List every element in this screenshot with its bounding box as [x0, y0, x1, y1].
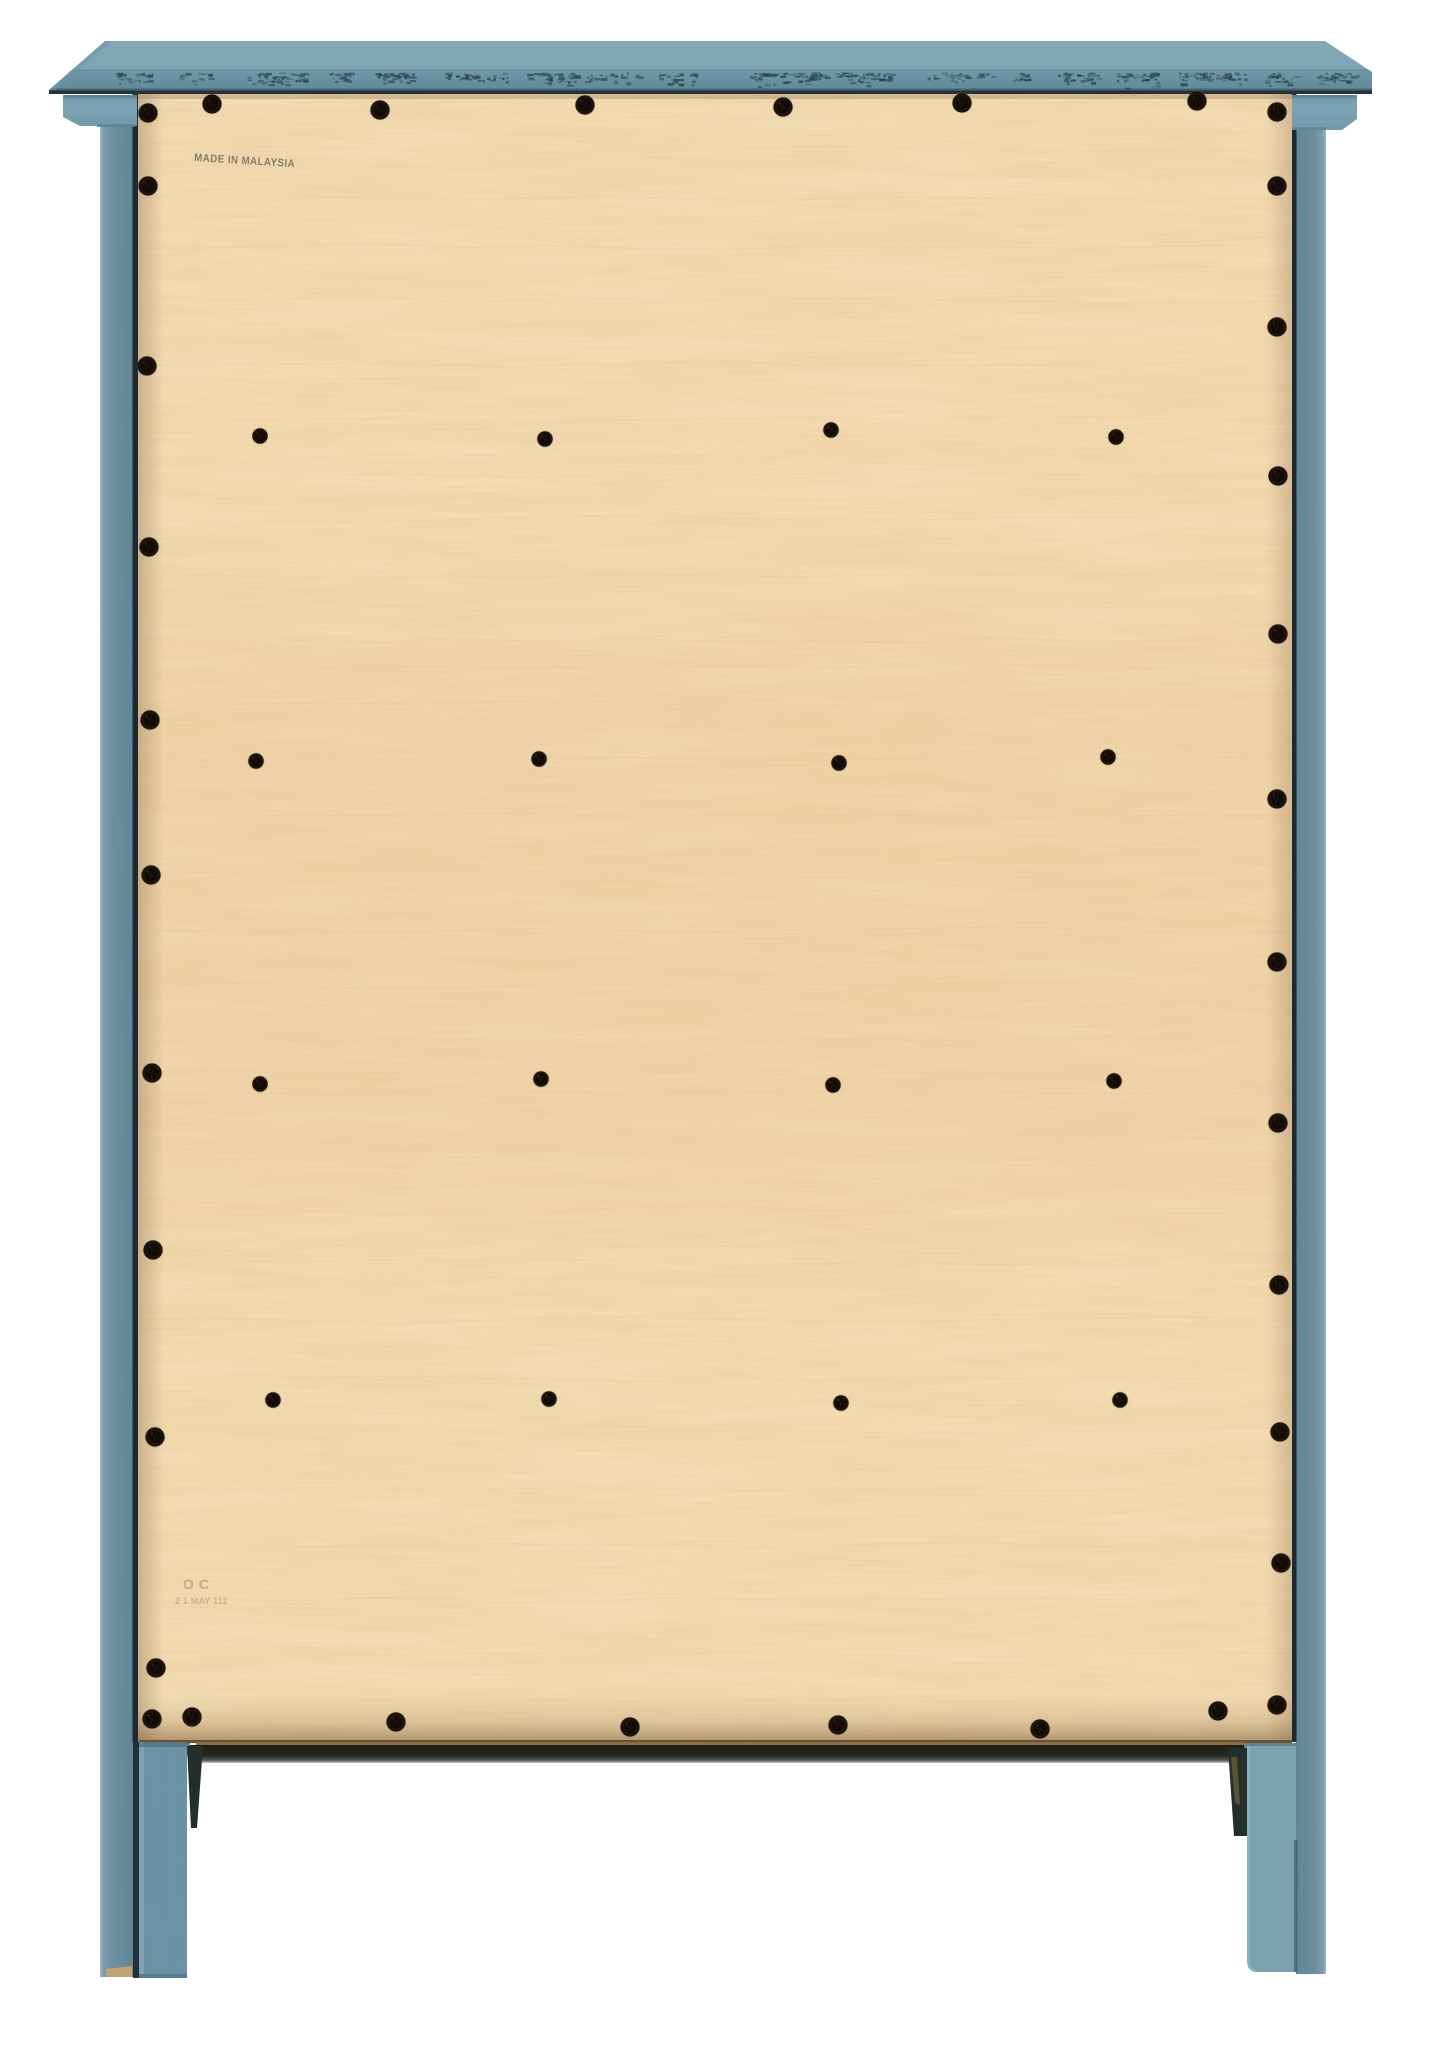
svg-text:OC: OC [183, 1576, 214, 1592]
svg-text:2 1 MAY 111: 2 1 MAY 111 [175, 1596, 228, 1606]
